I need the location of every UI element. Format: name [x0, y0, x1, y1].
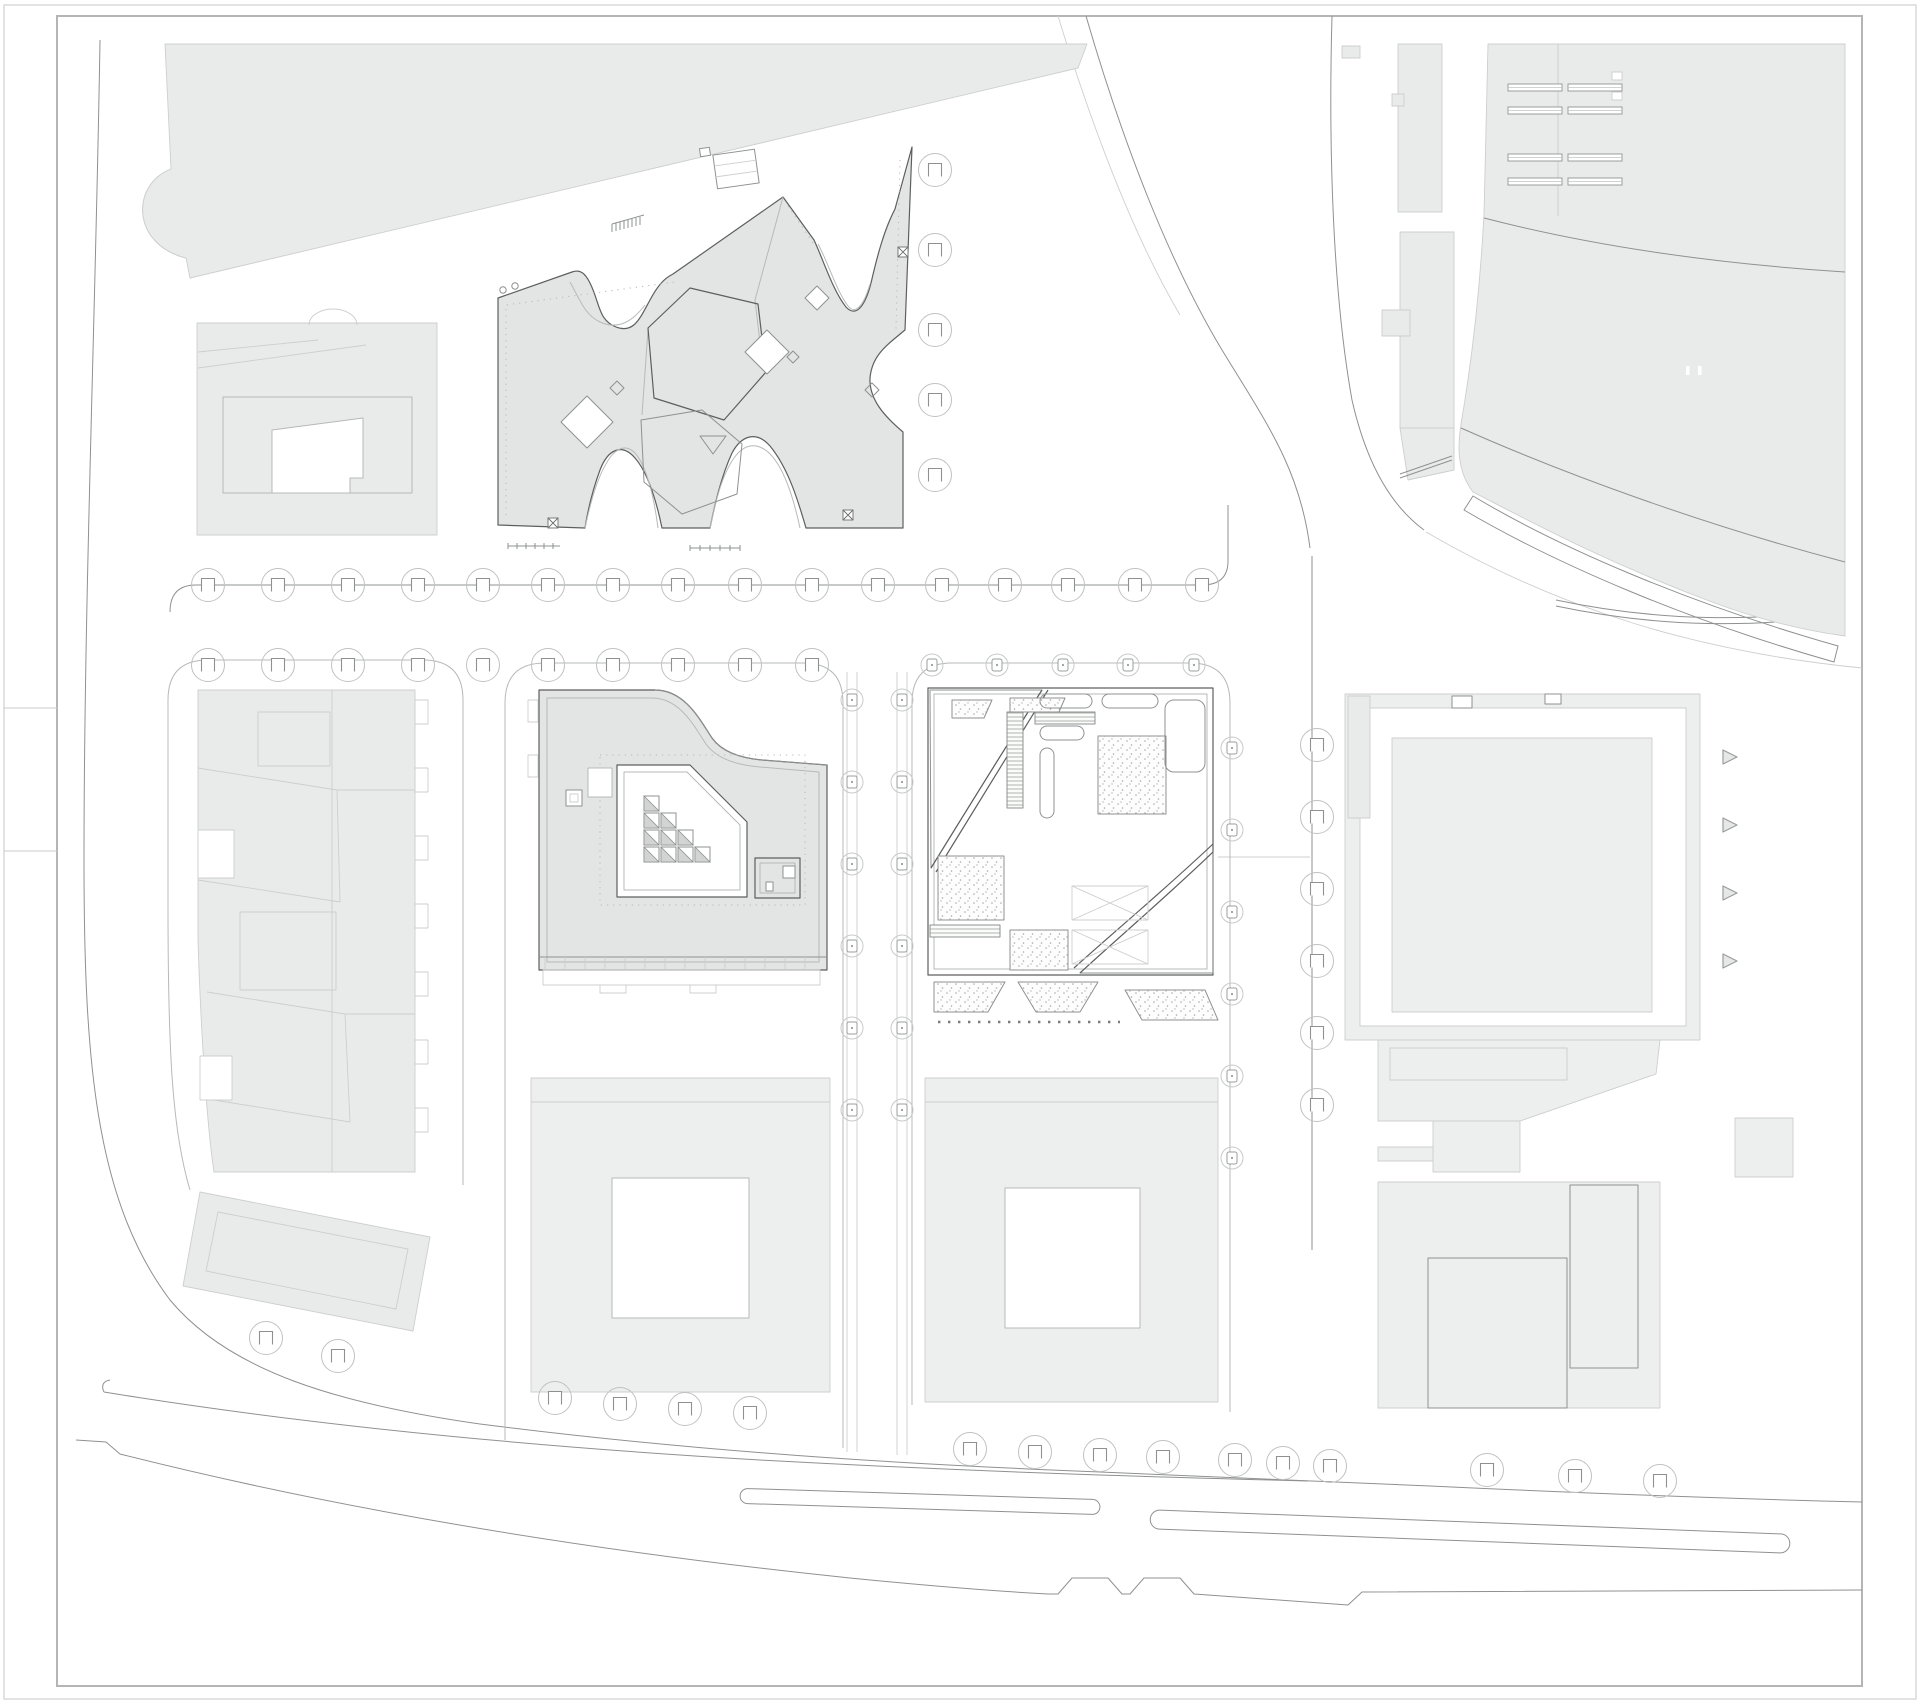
- eb-mid-mass: [1378, 1040, 1660, 1121]
- tree-icon: [919, 234, 952, 267]
- skylight-cell: [644, 830, 659, 845]
- tree-icon: [919, 314, 952, 347]
- x-building-roof: [498, 147, 912, 528]
- skylight-cell: [695, 847, 710, 862]
- tree-row-row-mid-center: [467, 649, 829, 682]
- tree-icon: [841, 689, 863, 711]
- x-mark-icon: [843, 510, 853, 520]
- west-block-balconies: [415, 700, 428, 1132]
- skylight-cell: [661, 813, 676, 828]
- tiny-circle-icon: [500, 287, 506, 293]
- tree-icon: [1301, 1017, 1334, 1050]
- tree-icon: [1301, 801, 1334, 834]
- tree-icon: [1052, 654, 1074, 676]
- triangle-marker-icon: [1723, 886, 1737, 900]
- tree-icon: [467, 649, 500, 682]
- roof-vent: [1568, 107, 1622, 114]
- eb-detached-pavilion: [1735, 1118, 1793, 1177]
- tree-icon: [891, 1017, 913, 1039]
- tree-icon: [841, 935, 863, 957]
- white-dash: [1698, 366, 1702, 375]
- arena-roof: [1459, 44, 1845, 636]
- lce-courtyard: [1005, 1188, 1140, 1328]
- lower-center-west-block: [531, 1078, 830, 1392]
- tree-icon: [891, 771, 913, 793]
- tree-icon: [192, 649, 225, 682]
- road-median-2: [1150, 1510, 1790, 1554]
- eb-small-mass: [1433, 1121, 1520, 1172]
- tree-row-col-right-street-west: [1221, 737, 1243, 1169]
- tree-icon: [1221, 737, 1243, 759]
- tree-icon: [729, 649, 762, 682]
- cw-small-unit: [566, 790, 582, 806]
- tree-icon: [1221, 1147, 1243, 1169]
- tree-icon: [332, 649, 365, 682]
- tree-icon: [891, 935, 913, 957]
- west-courtyard-building: [197, 309, 437, 535]
- triangle-marker-icon: [1723, 750, 1737, 764]
- skylight-cell: [678, 847, 693, 862]
- tree-icon: [1221, 1065, 1243, 1087]
- skylight-cell: [644, 847, 659, 862]
- tree-row-col-east-of-x-building: [919, 154, 952, 492]
- tree-icon: [597, 649, 630, 682]
- roof-vent: [1508, 154, 1562, 161]
- tree-icon: [1019, 1436, 1052, 1469]
- tree-row-row-bottom-corner: [1219, 1444, 1347, 1483]
- skylight-cell: [661, 830, 676, 845]
- tree-icon: [402, 649, 435, 682]
- tree-icon: [322, 1340, 355, 1373]
- tree-row-col-center-street-east: [891, 689, 913, 1121]
- tree-icon: [891, 1099, 913, 1121]
- tree-icon: [669, 1393, 702, 1426]
- direction-triangles: [1723, 750, 1737, 968]
- tree-icon: [1314, 1450, 1347, 1483]
- center-east-building: [928, 688, 1218, 1022]
- road-median-1: [740, 1488, 1100, 1514]
- tree-icon: [841, 1099, 863, 1121]
- tree-icon: [919, 459, 952, 492]
- arena-west-annex: [1342, 44, 1454, 480]
- tree-icon: [919, 384, 952, 417]
- roof-vent: [1568, 154, 1622, 161]
- tree-icon: [1219, 1444, 1252, 1477]
- tree-icon: [734, 1397, 767, 1430]
- margin-tick-lines: [4, 708, 57, 851]
- tree-icon: [262, 649, 295, 682]
- roof-vent: [1508, 178, 1562, 185]
- tree-row-col-right-street-east: [1301, 729, 1334, 1122]
- cw-corner-box: [755, 858, 800, 898]
- tree-icon: [1147, 1441, 1180, 1474]
- tree-icon: [1301, 873, 1334, 906]
- center-street-lines: [847, 672, 907, 1455]
- tree-icon: [841, 1017, 863, 1039]
- tree-icon: [891, 853, 913, 875]
- site-plan-sheet: [0, 0, 1920, 1701]
- tree-icon: [250, 1322, 283, 1355]
- tree-icon: [1559, 1460, 1592, 1493]
- skylight-cell: [644, 813, 659, 828]
- tree-row-row-mid-left: [192, 649, 435, 682]
- courtyard-opening: [272, 418, 363, 493]
- tree-icon: [796, 649, 829, 682]
- tree-icon: [1471, 1454, 1504, 1487]
- tree-icon: [891, 689, 913, 711]
- tree-icon: [1301, 1089, 1334, 1122]
- roof-vent: [1568, 84, 1622, 91]
- tree-icon: [1221, 819, 1243, 841]
- cw-roof-opening: [588, 768, 612, 797]
- arena-building: [1342, 44, 1845, 662]
- lcw-courtyard: [612, 1178, 749, 1318]
- rooftop-unit: [713, 149, 759, 189]
- tree-icon: [1301, 945, 1334, 978]
- tree-icon: [1267, 1447, 1300, 1480]
- tree-icon: [986, 654, 1008, 676]
- x-mark-icon: [548, 518, 558, 528]
- center-west-building: [528, 690, 827, 993]
- east-block: [1345, 694, 1793, 1408]
- roof-vent: [1508, 107, 1562, 114]
- tree-icon: [1644, 1465, 1677, 1498]
- ce-south-planters: [934, 982, 1218, 1020]
- tree-icon: [841, 771, 863, 793]
- tree-row-col-center-street-west: [841, 689, 863, 1121]
- site-plan-drawing: [0, 0, 1920, 1701]
- skylight-cell: [661, 847, 676, 862]
- x-mark-icon: [898, 247, 908, 257]
- tree-icon: [532, 649, 565, 682]
- tree-row-row-mid-right: [921, 654, 1205, 676]
- tree-icon: [1084, 1439, 1117, 1472]
- tree-icon: [1221, 901, 1243, 923]
- tree-icon: [921, 654, 943, 676]
- tree-icon: [662, 649, 695, 682]
- triangle-marker-icon: [1723, 818, 1737, 832]
- plot-trapezoid: [143, 44, 1087, 278]
- skylight-cell: [644, 796, 659, 811]
- tree-icon: [954, 1433, 987, 1466]
- tiny-circle-icon: [512, 283, 518, 289]
- tree-row-row-bottom-right-block: [1471, 1454, 1677, 1498]
- lower-center-east-block: [925, 1078, 1218, 1402]
- road-northeast-curve: [1086, 16, 1310, 548]
- roof-vent: [1568, 178, 1622, 185]
- skylight-cell: [678, 830, 693, 845]
- triangle-marker-icon: [1723, 954, 1737, 968]
- tree-row-row-bottom-far-left: [250, 1322, 355, 1373]
- tree-icon: [1183, 654, 1205, 676]
- tree-icon: [1301, 729, 1334, 762]
- west-residential-block: [183, 690, 430, 1331]
- roof-vent: [1508, 84, 1562, 91]
- tree-icon: [841, 853, 863, 875]
- tree-icon: [919, 154, 952, 187]
- tree-icon: [1221, 983, 1243, 1005]
- x-building: [498, 147, 912, 551]
- trapezoid-parcel: [143, 44, 1087, 278]
- white-dash: [1686, 366, 1690, 375]
- tree-icon: [1117, 654, 1139, 676]
- road-south: [76, 1440, 1862, 1605]
